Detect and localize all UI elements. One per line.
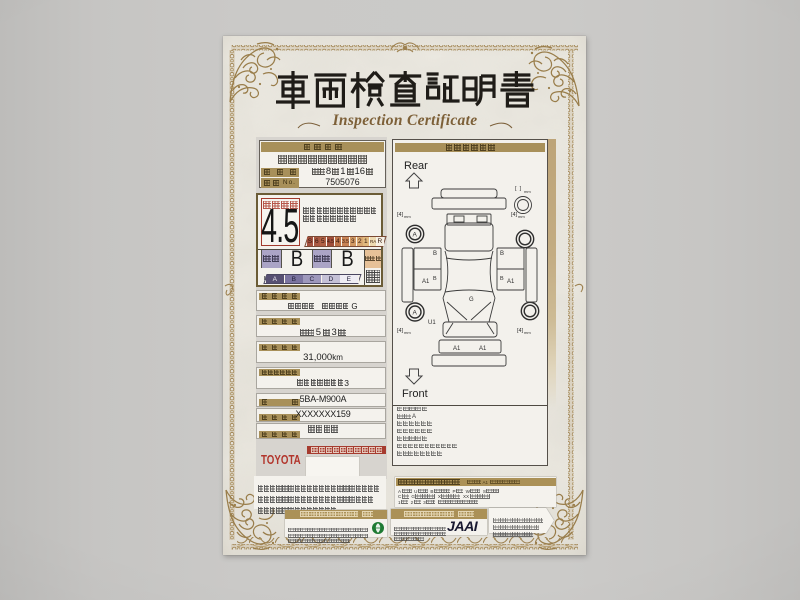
svg-text:Front: Front [402,388,428,400]
svg-text:U1: U1 [428,320,436,326]
svg-text:mm: mm [524,330,531,335]
svg-text:mm: mm [404,330,411,335]
svg-text:[4]: [4] [397,328,404,334]
svg-text:A1: A1 [453,346,461,352]
svg-text:A1: A1 [507,279,515,285]
svg-text:B: B [500,276,504,282]
svg-text:B: B [500,251,504,257]
svg-text:[4]: [4] [511,212,518,218]
svg-text:[ ]: [ ] [515,186,522,192]
svg-text:A1: A1 [422,279,430,285]
svg-text:A: A [413,232,418,239]
svg-text:mm: mm [524,189,531,194]
svg-text:[4]: [4] [517,328,524,334]
svg-text:Rear: Rear [404,160,428,172]
svg-text:[4]: [4] [397,212,404,218]
svg-text:A: A [413,310,418,317]
svg-text:A1: A1 [479,346,487,352]
svg-text:B: B [433,276,437,282]
svg-text:mm: mm [518,214,525,219]
svg-text:G: G [469,297,474,303]
svg-text:B: B [433,251,437,257]
svg-text:mm: mm [404,214,411,219]
